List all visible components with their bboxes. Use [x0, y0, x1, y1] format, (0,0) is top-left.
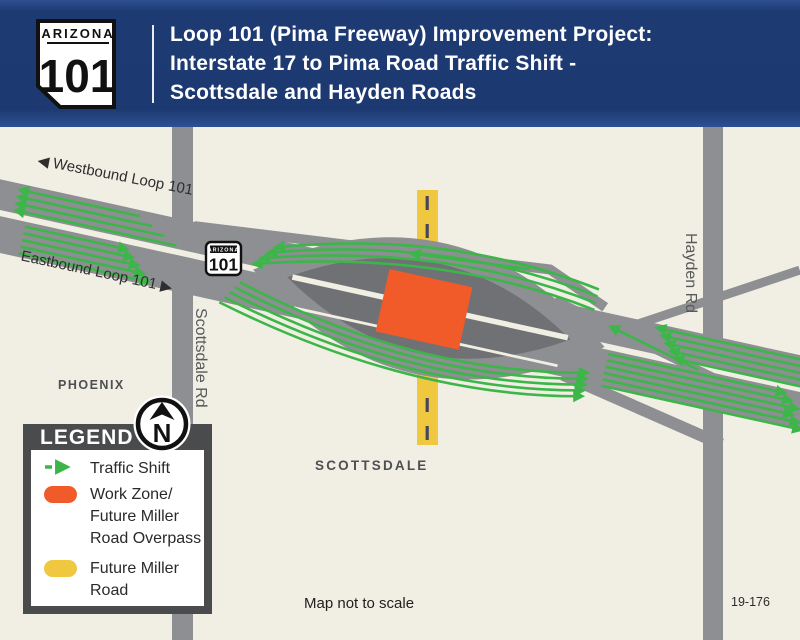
az-101-shield-logo: ARIZONA 101 [35, 18, 117, 110]
legend-work-zone-line-3: Road Overpass [90, 530, 201, 547]
legend-future-road-line-2: Road [90, 582, 128, 599]
doc-number: 19-176 [731, 595, 770, 609]
shield-state-label: ARIZONA [41, 26, 114, 41]
legend-work-zone-swatch [44, 486, 77, 503]
legend-future-road-swatch [44, 560, 77, 577]
az-101-map-shield: ARIZONA 101 [206, 242, 241, 275]
title-line-2: Interstate 17 to Pima Road Traffic Shift… [170, 49, 653, 78]
scottsdale-label: SCOTTSDALE [315, 458, 429, 473]
legend: LEGEND Traffic Shift Work Zone/ Future M… [23, 424, 212, 614]
scottsdale-rd-label: Scottsdale Rd [192, 308, 209, 408]
project-map: ARIZONA 101 ◀ Westbound Loop 101 Eastbou… [0, 127, 800, 640]
traffic-shift-map-page: ARIZONA 101 Loop 101 (Pima Freeway) Impr… [0, 0, 800, 640]
title-line-3: Scottsdale and Hayden Roads [170, 78, 653, 107]
north-arrow: N [135, 397, 189, 451]
hayden-rd-label: Hayden Rd [682, 233, 699, 313]
map-shield-number: 101 [209, 255, 238, 275]
legend-work-zone-line-1: Work Zone/ [90, 486, 173, 503]
page-title: Loop 101 (Pima Freeway) Improvement Proj… [154, 20, 653, 107]
legend-work-zone-line-2: Future Miller [90, 508, 180, 525]
phoenix-label: PHOENIX [58, 378, 125, 392]
header-banner: ARIZONA 101 Loop 101 (Pima Freeway) Impr… [0, 0, 800, 127]
shield-route-number: 101 [39, 50, 116, 102]
header-divider [152, 25, 154, 103]
north-arrow-letter: N [153, 418, 172, 448]
legend-title: LEGEND [40, 426, 134, 449]
map-shield-state: ARIZONA [208, 248, 240, 254]
legend-future-road-line-1: Future Miller [90, 560, 180, 577]
header-shield-wrap: ARIZONA 101 [0, 18, 152, 110]
title-line-1: Loop 101 (Pima Freeway) Improvement Proj… [170, 20, 653, 49]
map-scale-note: Map not to scale [304, 595, 414, 612]
legend-traffic-shift-label: Traffic Shift [90, 460, 171, 477]
